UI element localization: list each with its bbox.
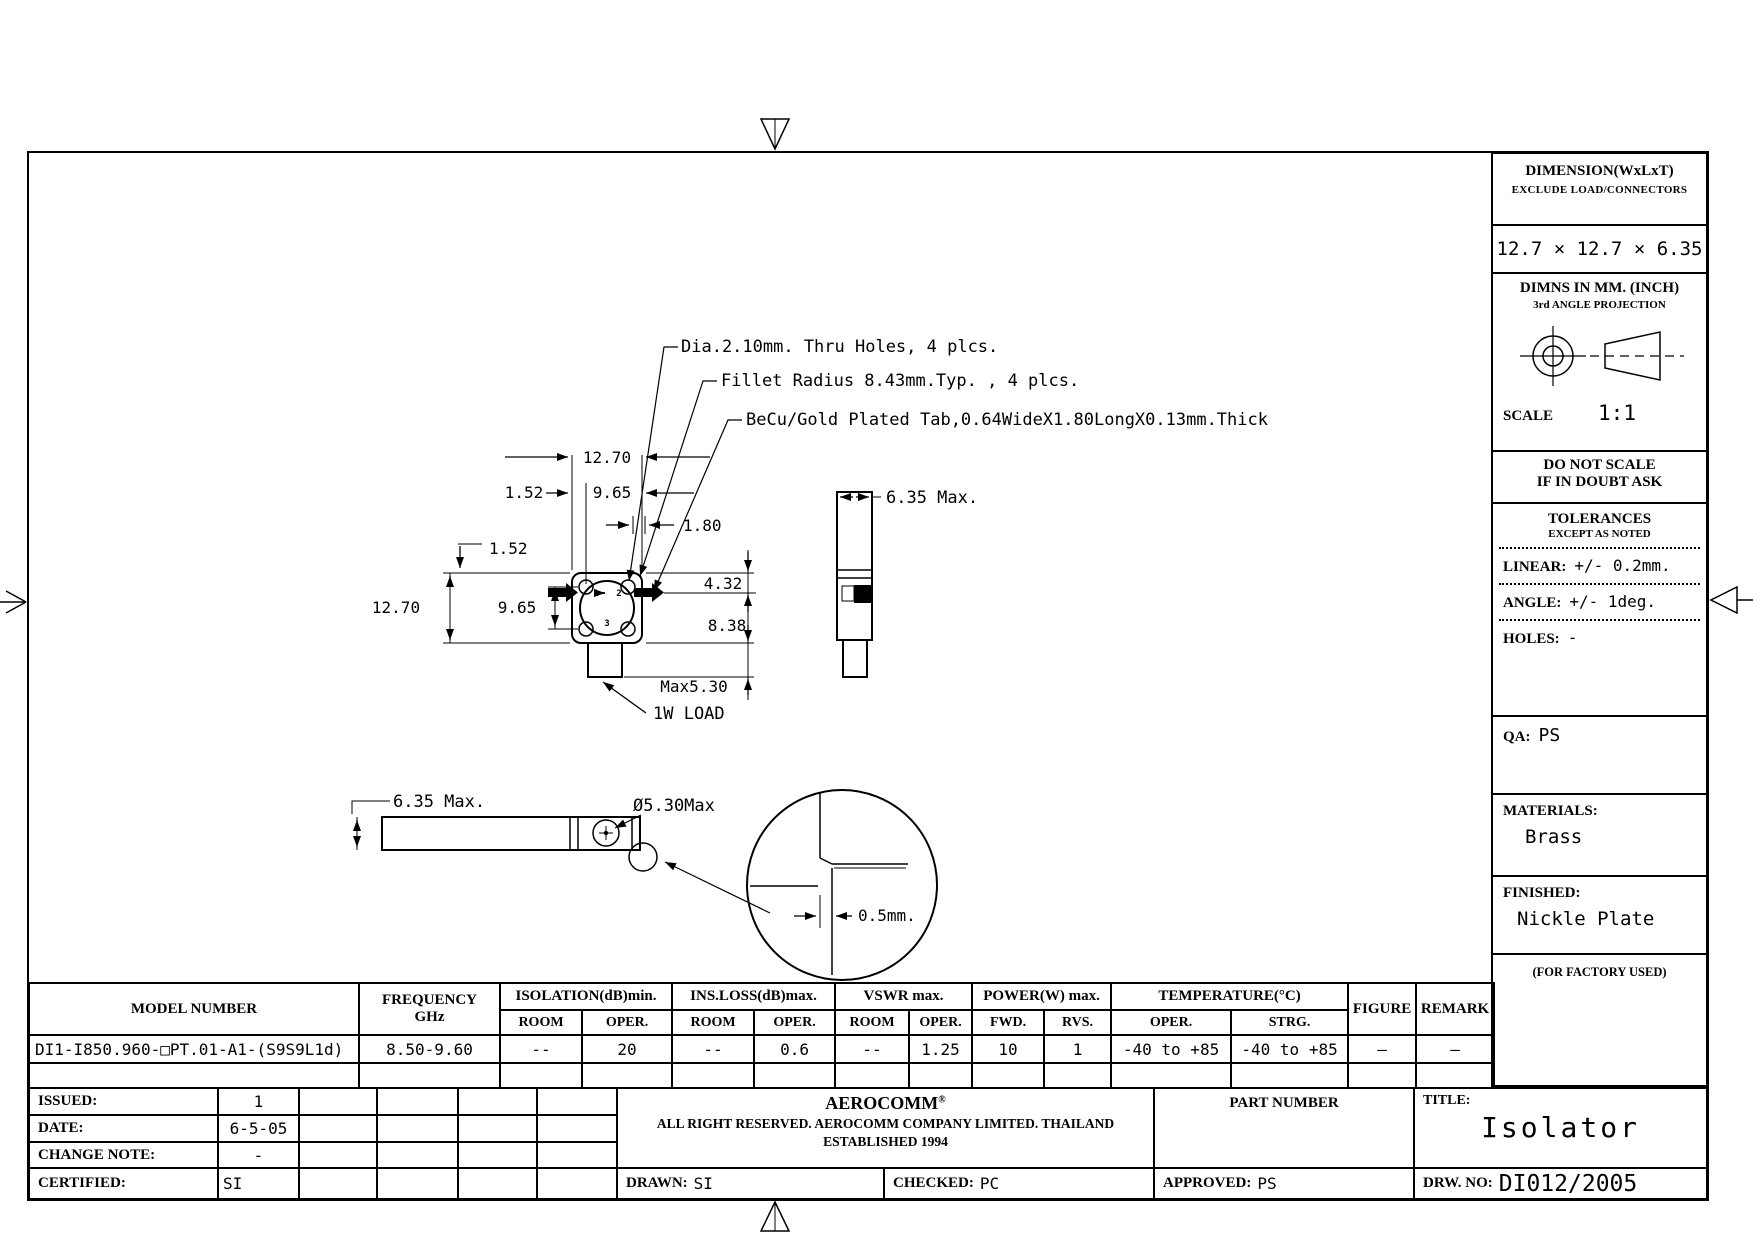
linear-tolerance-row: LINEAR: +/- 0.2mm. bbox=[1493, 556, 1706, 576]
subcol-pwr-fwd: FWD. bbox=[972, 1010, 1044, 1035]
bottom-view-dim: 6.35 Max. bbox=[393, 792, 485, 812]
cell-ins-room: -- bbox=[672, 1035, 754, 1063]
port1-label: 1 bbox=[593, 589, 598, 599]
part-number-cell: PART NUMBER bbox=[1155, 1089, 1415, 1169]
projection-cell: DIMNS IN MM. (INCH) 3rd ANGLE PROJECTION… bbox=[1493, 274, 1706, 452]
empty-cell bbox=[378, 1169, 459, 1198]
cell-ins-oper: 0.6 bbox=[754, 1035, 835, 1063]
cell-figure: — bbox=[1348, 1035, 1416, 1063]
drawing-number-value: DI012/2005 bbox=[1499, 1171, 1637, 1197]
cell-model: DI1-I850.960-□PT.01-A1-(S9S9L1d) bbox=[29, 1035, 359, 1063]
company-line1: ALL RIGHT RESERVED. AEROCOMM COMPANY LIM… bbox=[618, 1116, 1153, 1132]
holes-tolerance-row: HOLES: - bbox=[1493, 628, 1706, 648]
materials-value: Brass bbox=[1493, 820, 1706, 848]
drawn-cell: DRAWN: SI bbox=[618, 1169, 885, 1198]
projection-note: 3rd ANGLE PROJECTION bbox=[1493, 299, 1706, 311]
frequency-label: FREQUENCY bbox=[360, 992, 499, 1009]
empty-cell bbox=[300, 1169, 378, 1198]
subcol-vswr-room: ROOM bbox=[835, 1010, 909, 1035]
cell-remark: — bbox=[1416, 1035, 1494, 1063]
change-note-label: CHANGE NOTE: bbox=[38, 1147, 155, 1164]
third-angle-projection-icon bbox=[1508, 315, 1692, 397]
change-note-value: - bbox=[219, 1143, 300, 1169]
side-view-dim: 6.35 Max. bbox=[886, 488, 978, 508]
qa-cell: QA: PS bbox=[1493, 717, 1706, 795]
company-name: AEROCOMM bbox=[825, 1093, 938, 1113]
certified-value: SI bbox=[219, 1169, 300, 1198]
dim-top-965: 9.65 bbox=[593, 483, 632, 502]
tab-right bbox=[634, 583, 664, 602]
dim-432: 4.32 bbox=[704, 574, 743, 593]
tolerances-subtitle: EXCEPT AS NOTED bbox=[1493, 528, 1706, 540]
drawing-number-cell: DRW. NO: DI012/2005 bbox=[1415, 1169, 1706, 1198]
warning-line2: IF IN DOUBT ASK bbox=[1493, 474, 1706, 491]
cell-iso-room: -- bbox=[500, 1035, 582, 1063]
title-cell: TITLE: Isolator bbox=[1415, 1089, 1706, 1169]
empty-cell bbox=[538, 1169, 618, 1198]
issued-label: ISSUED: bbox=[38, 1093, 97, 1110]
empty-row bbox=[29, 1063, 1494, 1088]
detail-view bbox=[747, 790, 937, 980]
empty-cell bbox=[300, 1089, 378, 1116]
angle-label: ANGLE: bbox=[1503, 595, 1561, 612]
part-number-label: PART NUMBER bbox=[1155, 1095, 1413, 1112]
issued-value: 1 bbox=[219, 1089, 300, 1116]
date-value: 6-5-05 bbox=[219, 1116, 300, 1143]
cell-temp-oper: -40 to +85 bbox=[1111, 1035, 1231, 1063]
spec-table: MODEL NUMBER FREQUENCY GHz ISOLATION(dB)… bbox=[28, 982, 1495, 1089]
cell-temp-strg: -40 to +85 bbox=[1231, 1035, 1348, 1063]
dim-838: 8.38 bbox=[708, 616, 747, 635]
subcol-vswr-oper: OPER. bbox=[909, 1010, 972, 1035]
detail-step-dim: 0.5mm. bbox=[858, 906, 916, 925]
factory-cell: (FOR FACTORY USED) bbox=[1493, 955, 1706, 1085]
front-view-dimension-labels: 12.70 1.52 9.65 1.80 1.52 12.70 9.65 4.3… bbox=[372, 448, 746, 724]
dotted-rule bbox=[1499, 619, 1700, 621]
register-mark-right bbox=[1711, 587, 1753, 613]
title-label: TITLE: bbox=[1415, 1089, 1706, 1109]
callout-labels: Dia.2.10mm. Thru Holes, 4 plcs. Fillet R… bbox=[681, 337, 1268, 430]
drawing-number-label: DRW. NO: bbox=[1423, 1175, 1493, 1192]
angle-tolerance-row: ANGLE: +/- 1deg. bbox=[1493, 592, 1706, 612]
materials-cell: MATERIALS: Brass bbox=[1493, 795, 1706, 877]
empty-cell bbox=[459, 1143, 538, 1169]
col-isolation: ISOLATION(dB)min. bbox=[500, 983, 672, 1010]
subcol-temp-strg: STRG. bbox=[1231, 1010, 1348, 1035]
finished-cell: FINISHED: Nickle Plate bbox=[1493, 877, 1706, 955]
info-sidebar: DIMENSION(WxLxT) EXCLUDE LOAD/CONNECTORS… bbox=[1491, 152, 1708, 1087]
holes-value: - bbox=[1568, 628, 1578, 647]
empty-cell bbox=[538, 1143, 618, 1169]
dimension-value: 12.7 × 12.7 × 6.35 bbox=[1493, 226, 1706, 272]
subcol-iso-oper: OPER. bbox=[582, 1010, 672, 1035]
approved-label: APPROVED: bbox=[1163, 1175, 1251, 1192]
tolerances-cell: TOLERANCES EXCEPT AS NOTED LINEAR: +/- 0… bbox=[1493, 504, 1706, 717]
empty-cell bbox=[538, 1116, 618, 1143]
bottom-view-dia: Ø5.30Max bbox=[633, 796, 715, 816]
holes-label: HOLES: bbox=[1503, 631, 1560, 648]
materials-label: MATERIALS: bbox=[1493, 795, 1706, 820]
units-note: DIMNS IN MM. (INCH) bbox=[1493, 280, 1706, 297]
finished-value: Nickle Plate bbox=[1493, 902, 1706, 930]
subcol-iso-room: ROOM bbox=[500, 1010, 582, 1035]
dim-hole-offset: 1.52 bbox=[489, 539, 528, 558]
company-cell: AEROCOMM® ALL RIGHT RESERVED. AEROCOMM C… bbox=[618, 1089, 1155, 1169]
col-temperature: TEMPERATURE(°C) bbox=[1111, 983, 1348, 1010]
do-not-scale-cell: DO NOT SCALE IF IN DOUBT ASK bbox=[1493, 452, 1706, 504]
col-remark: REMARK bbox=[1416, 983, 1494, 1035]
register-mark-bottom bbox=[761, 1202, 789, 1231]
dim-left-height: 12.70 bbox=[372, 598, 420, 617]
frequency-units: GHz bbox=[360, 1009, 499, 1026]
subcol-ins-oper: OPER. bbox=[754, 1010, 835, 1035]
load-annotation: 1W LOAD bbox=[653, 704, 725, 724]
empty-cell bbox=[378, 1116, 459, 1143]
company-line2: ESTABLISHED 1994 bbox=[618, 1134, 1153, 1150]
fillet-annotation: Fillet Radius 8.43mm.Typ. , 4 plcs. bbox=[721, 371, 1079, 391]
empty-cell bbox=[378, 1143, 459, 1169]
port3-label: 3 bbox=[604, 619, 609, 629]
drawing-sheet: { "drawing": { "ann_holes": "Dia.2.10mm.… bbox=[0, 0, 1754, 1240]
dotted-rule bbox=[1499, 583, 1700, 585]
warning-line1: DO NOT SCALE bbox=[1493, 457, 1706, 474]
empty-cell bbox=[300, 1143, 378, 1169]
drawn-label: DRAWN: bbox=[626, 1175, 688, 1192]
dim-left-holes: 9.65 bbox=[498, 598, 537, 617]
dim-load-length: Max5.30 bbox=[660, 677, 727, 696]
col-frequency: FREQUENCY GHz bbox=[359, 983, 500, 1035]
cell-vswr-oper: 1.25 bbox=[909, 1035, 972, 1063]
checked-cell: CHECKED: PC bbox=[885, 1169, 1155, 1198]
col-insloss: INS.LOSS(dB)max. bbox=[672, 983, 835, 1010]
empty-cell bbox=[459, 1116, 538, 1143]
approved-cell: APPROVED: PS bbox=[1155, 1169, 1415, 1198]
thru-holes-annotation: Dia.2.10mm. Thru Holes, 4 plcs. bbox=[681, 337, 998, 357]
subcol-temp-oper: OPER. bbox=[1111, 1010, 1231, 1035]
empty-cell bbox=[459, 1089, 538, 1116]
cell-pwr-rvs: 1 bbox=[1044, 1035, 1111, 1063]
load-tab bbox=[588, 643, 622, 677]
col-model-number: MODEL NUMBER bbox=[29, 983, 359, 1035]
cell-freq: 8.50-9.60 bbox=[359, 1035, 500, 1063]
register-mark-top bbox=[761, 119, 789, 149]
dotted-rule bbox=[1499, 547, 1700, 549]
drawn-value: SI bbox=[694, 1174, 713, 1193]
finished-label: FINISHED: bbox=[1493, 877, 1706, 902]
dimension-value-cell: 12.7 × 12.7 × 6.35 bbox=[1493, 226, 1706, 274]
tolerances-title: TOLERANCES bbox=[1493, 511, 1706, 528]
qa-value: PS bbox=[1539, 725, 1561, 746]
dimension-subtitle: EXCLUDE LOAD/CONNECTORS bbox=[1493, 184, 1706, 196]
dimension-cell: DIMENSION(WxLxT) EXCLUDE LOAD/CONNECTORS bbox=[1493, 154, 1706, 226]
checked-label: CHECKED: bbox=[893, 1175, 974, 1192]
empty-cell bbox=[300, 1116, 378, 1143]
scale-label: SCALE bbox=[1503, 408, 1553, 425]
title-block: ISSUED: 1 DATE: 6-5-05 CHANGE NOTE: - CE… bbox=[28, 1087, 1708, 1200]
register-mark-left bbox=[0, 591, 26, 613]
angle-value: +/- 1deg. bbox=[1569, 592, 1656, 611]
port2-label: 2 bbox=[616, 589, 621, 599]
scale-value: 1:1 bbox=[1598, 401, 1636, 425]
detail-balloon bbox=[629, 843, 657, 871]
linear-label: LINEAR: bbox=[1503, 559, 1566, 576]
date-label: DATE: bbox=[38, 1120, 84, 1137]
title-value: Isolator bbox=[1415, 1111, 1706, 1144]
certified-label: CERTIFIED: bbox=[38, 1175, 126, 1192]
dimension-title: DIMENSION(WxLxT) bbox=[1493, 163, 1706, 180]
empty-cell bbox=[378, 1089, 459, 1116]
cell-iso-oper: 20 bbox=[582, 1035, 672, 1063]
col-power: POWER(W) max. bbox=[972, 983, 1111, 1010]
dim-top-152: 1.52 bbox=[505, 483, 544, 502]
subcol-ins-room: ROOM bbox=[672, 1010, 754, 1035]
registered-mark-icon: ® bbox=[938, 1095, 945, 1106]
qa-label: QA: bbox=[1503, 729, 1531, 746]
factory-note: (FOR FACTORY USED) bbox=[1493, 965, 1706, 980]
col-vswr: VSWR max. bbox=[835, 983, 972, 1010]
side-view bbox=[837, 492, 881, 677]
dim-top-width: 12.70 bbox=[583, 448, 631, 467]
cell-vswr-room: -- bbox=[835, 1035, 909, 1063]
tab-left bbox=[548, 583, 578, 602]
dim-tab-length: 1.80 bbox=[683, 516, 722, 535]
subcol-pwr-rvs: RVS. bbox=[1044, 1010, 1111, 1035]
front-view-port-labels: 1 2 3 bbox=[593, 589, 621, 629]
linear-value: +/- 0.2mm. bbox=[1574, 556, 1670, 575]
empty-cell bbox=[459, 1169, 538, 1198]
col-figure: FIGURE bbox=[1348, 983, 1416, 1035]
empty-cell bbox=[538, 1089, 618, 1116]
checked-value: PC bbox=[980, 1174, 999, 1193]
approved-value: PS bbox=[1257, 1174, 1276, 1193]
tab-annotation: BeCu/Gold Plated Tab,0.64WideX1.80LongX0… bbox=[746, 410, 1268, 430]
cell-pwr-fwd: 10 bbox=[972, 1035, 1044, 1063]
